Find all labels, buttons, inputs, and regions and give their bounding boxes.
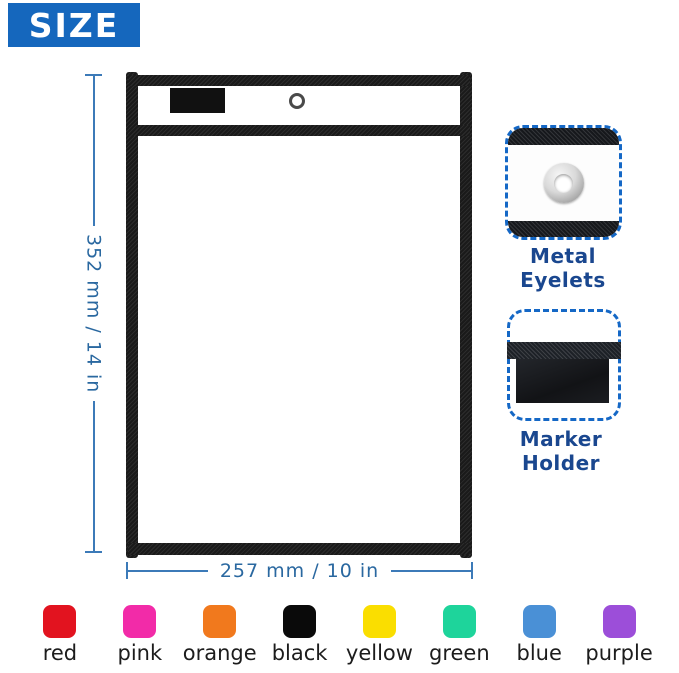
dimension-line-lower [93, 401, 95, 551]
eyelet-fabric-top-strip [508, 128, 619, 145]
color-label-yellow: yellow [346, 643, 413, 664]
color-label-green: green [429, 643, 490, 664]
color-swatch-pink: pink [100, 605, 180, 669]
pocket-top-frame [128, 75, 470, 86]
size-banner-label: SIZE [29, 9, 120, 42]
color-swatch-blue: blue [499, 605, 579, 669]
color-chip-blue [523, 605, 556, 638]
color-options-row: red pink orange black yellow green blue [20, 605, 659, 669]
color-swatch-black: black [260, 605, 340, 669]
color-label-pink: pink [117, 643, 162, 664]
eyelet-hole [554, 174, 573, 193]
color-chip-pink [123, 605, 156, 638]
pocket-left-frame [126, 72, 138, 558]
color-swatch-yellow: yellow [340, 605, 420, 669]
color-chip-black [283, 605, 316, 638]
height-dimension-label: 352 mm / 14 in [83, 234, 105, 393]
marker-holder-tab [170, 88, 225, 113]
pocket-bottom-frame [128, 543, 470, 555]
eyelet-closeup-area [508, 145, 619, 221]
color-chip-red [43, 605, 76, 638]
marker-holder-strip [507, 342, 621, 359]
dimension-line-right [391, 570, 471, 572]
dimension-line-left [128, 570, 208, 572]
metal-eyelets-label: Metal Eyelets [493, 244, 633, 292]
color-chip-green [443, 605, 476, 638]
marker-holder-label: Marker Holder [491, 427, 631, 475]
height-dimension: 352 mm / 14 in [85, 74, 102, 553]
color-swatch-purple: purple [579, 605, 659, 669]
metal-eyelets-callout [505, 125, 622, 240]
color-label-orange: orange [183, 643, 257, 664]
color-label-blue: blue [516, 643, 561, 664]
dry-erase-pocket-diagram [126, 72, 472, 558]
dimension-cap-right [471, 562, 473, 579]
eyelet-fabric-bottom-strip [508, 221, 619, 237]
color-swatch-green: green [419, 605, 499, 669]
color-swatch-orange: orange [180, 605, 260, 669]
color-label-black: black [272, 643, 328, 664]
color-label-red: red [43, 643, 77, 664]
color-chip-orange [203, 605, 236, 638]
width-dimension-label: 257 mm / 10 in [220, 560, 379, 582]
color-swatch-red: red [20, 605, 100, 669]
marker-holder-callout [507, 309, 621, 421]
eyelet-ring-icon [289, 93, 305, 109]
color-chip-purple [603, 605, 636, 638]
color-label-purple: purple [585, 643, 652, 664]
marker-holder-pocket [516, 359, 609, 403]
pocket-right-frame [460, 72, 472, 558]
pocket-header-divider [128, 125, 470, 136]
product-size-infographic: SIZE 352 mm / 14 in 257 mm / 10 in [0, 0, 679, 673]
width-dimension: 257 mm / 10 in [126, 562, 473, 579]
size-banner: SIZE [8, 3, 140, 47]
dimension-cap-bottom [85, 551, 102, 553]
color-chip-yellow [363, 605, 396, 638]
dimension-line-upper [93, 76, 95, 226]
metal-eyelet-icon [544, 163, 584, 203]
